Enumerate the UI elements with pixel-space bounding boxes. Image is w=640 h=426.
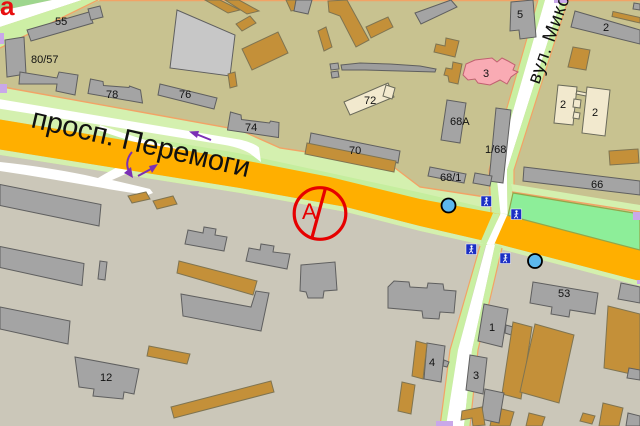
svg-text:55: 55 — [55, 16, 67, 28]
svg-text:5: 5 — [517, 9, 523, 21]
svg-text:1/68: 1/68 — [485, 144, 506, 156]
svg-text:А: А — [302, 199, 317, 224]
svg-text:2: 2 — [592, 107, 598, 119]
svg-text:4: 4 — [429, 357, 435, 369]
svg-text:3: 3 — [473, 370, 479, 382]
svg-text:3: 3 — [483, 68, 489, 80]
svg-text:80/57: 80/57 — [31, 54, 59, 66]
svg-text:53: 53 — [558, 288, 570, 300]
svg-text:68А: 68А — [450, 116, 470, 128]
svg-text:2: 2 — [603, 22, 609, 34]
svg-text:74: 74 — [245, 122, 257, 134]
svg-text:68/1: 68/1 — [440, 172, 461, 184]
svg-text:78: 78 — [106, 89, 118, 101]
svg-text:72: 72 — [364, 95, 376, 107]
svg-text:66: 66 — [591, 179, 603, 191]
svg-text:a: a — [0, 0, 15, 21]
svg-text:2: 2 — [560, 99, 566, 111]
svg-text:70: 70 — [349, 145, 361, 157]
svg-text:76: 76 — [179, 89, 191, 101]
svg-text:1: 1 — [489, 322, 495, 334]
svg-text:12: 12 — [100, 372, 112, 384]
